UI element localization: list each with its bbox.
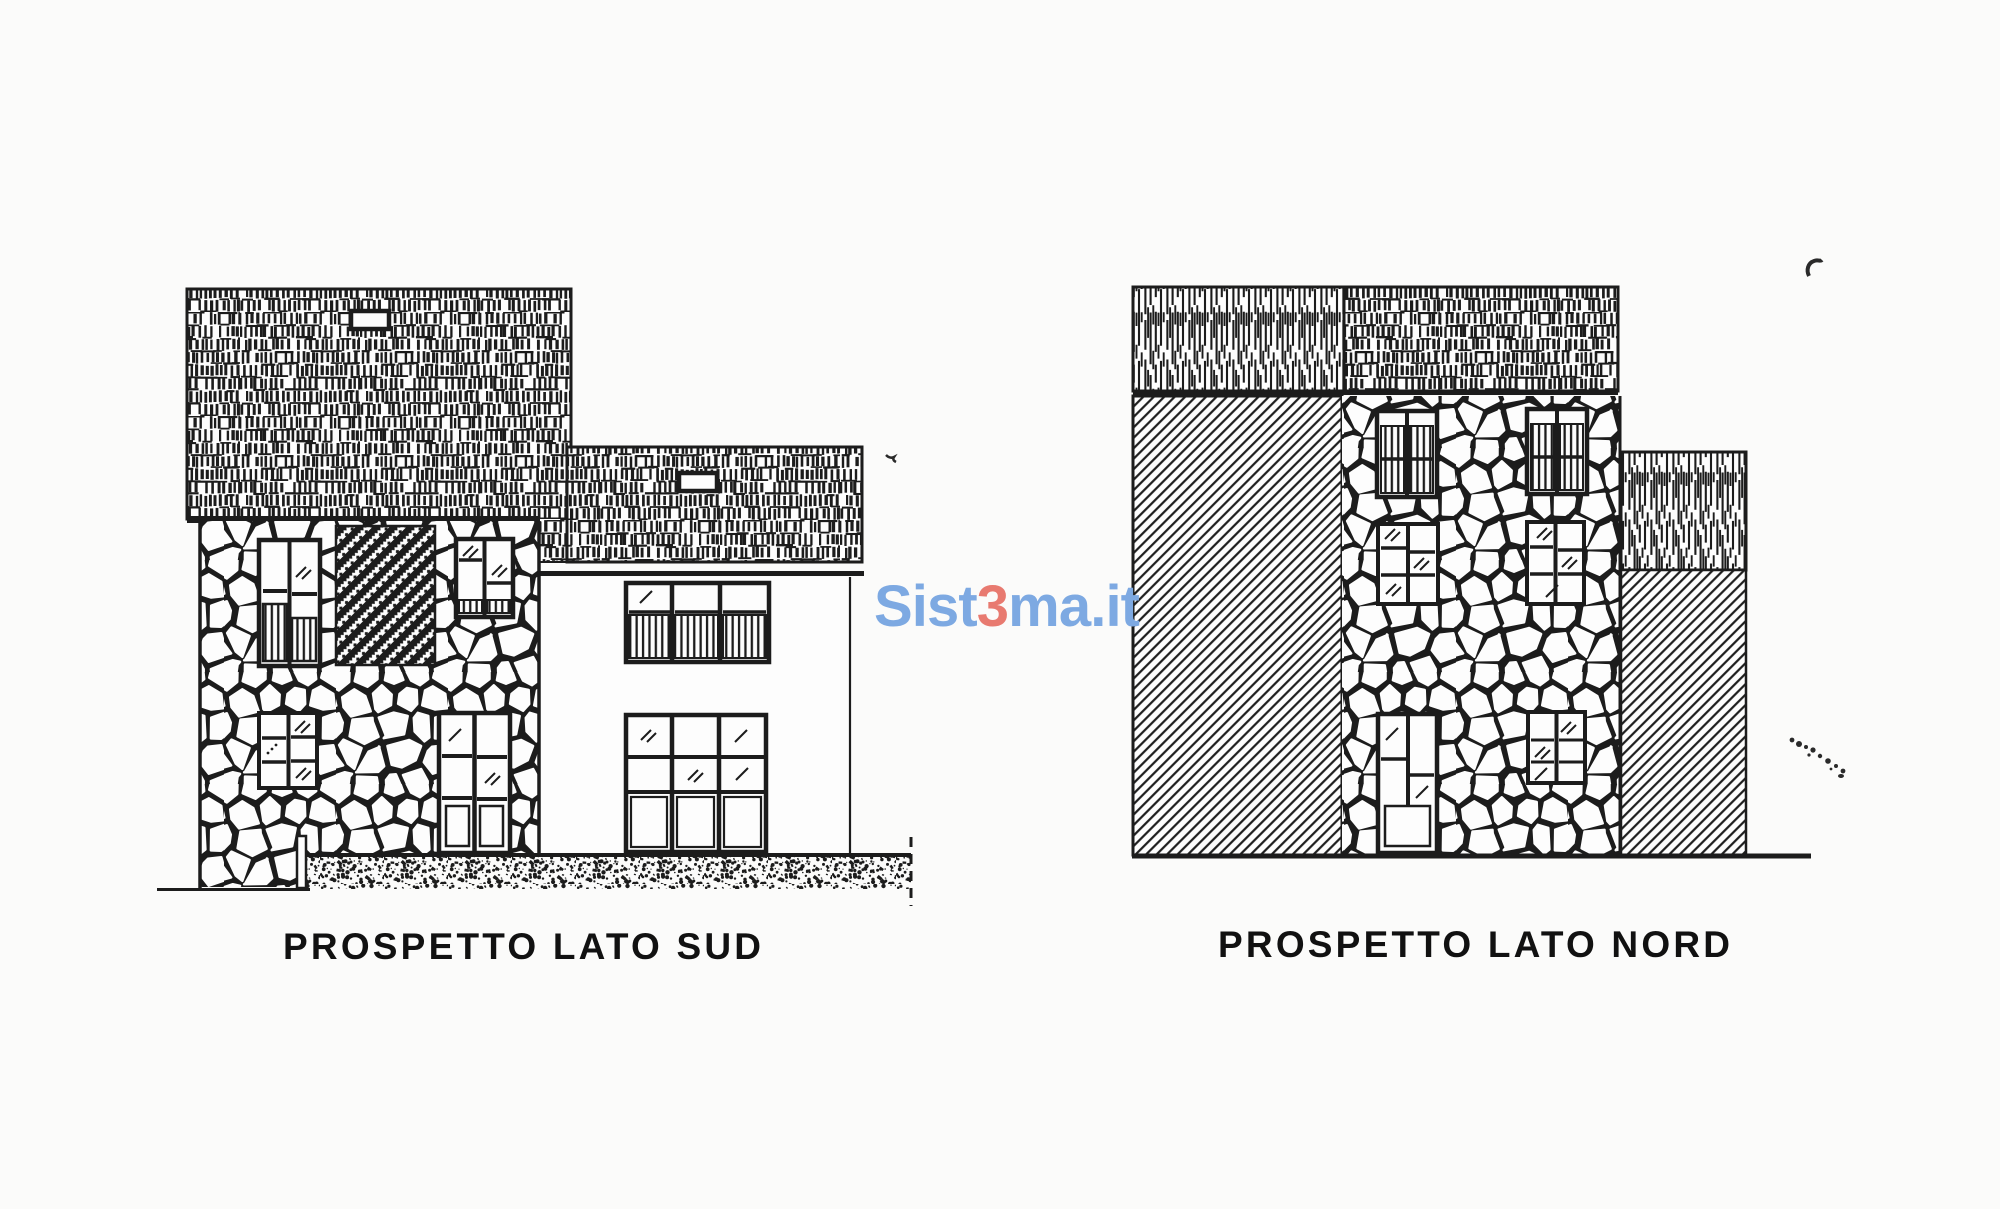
svg-text:Sist3ma.it: Sist3ma.it [874,574,1140,639]
svg-text:PROSPETTO LATO NORD: PROSPETTO LATO NORD [1218,924,1730,965]
svg-text:PROSPETTO LATO SUD: PROSPETTO LATO SUD [283,926,761,967]
